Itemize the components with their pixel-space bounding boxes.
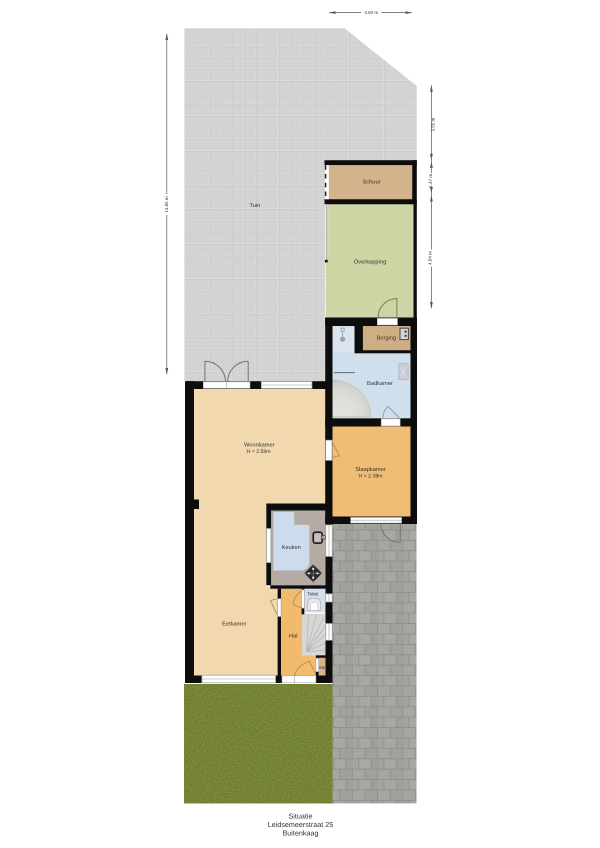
svg-text:Tuin: Tuin — [249, 202, 260, 209]
svg-text:14.65 m: 14.65 m — [164, 196, 169, 213]
svg-text:Overkapping: Overkapping — [354, 259, 386, 266]
svg-text:3.60 m: 3.60 m — [364, 10, 378, 15]
svg-text:Berging: Berging — [376, 335, 396, 342]
svg-text:H = 2.38m: H = 2.38m — [358, 474, 382, 480]
svg-text:Mk: Mk — [319, 665, 325, 670]
svg-text:Hal: Hal — [289, 633, 298, 640]
svg-text:4.84 m: 4.84 m — [428, 251, 433, 265]
svg-text:Slaapkamer: Slaapkamer — [355, 466, 385, 473]
svg-text:Toilet: Toilet — [307, 591, 319, 597]
svg-text:Woonkamer: Woonkamer — [244, 442, 275, 449]
svg-text:Keuken: Keuken — [282, 544, 301, 551]
svg-text:Eetkamer: Eetkamer — [222, 621, 246, 628]
svg-text:3.55 m: 3.55 m — [431, 117, 436, 131]
svg-text:1.47 m: 1.47 m — [428, 174, 433, 188]
svg-text:Buitenkaag: Buitenkaag — [283, 828, 319, 837]
svg-text:Schuur: Schuur — [362, 178, 380, 185]
svg-text:Badkamer: Badkamer — [367, 380, 393, 387]
svg-text:H = 2.59m: H = 2.59m — [247, 449, 271, 455]
